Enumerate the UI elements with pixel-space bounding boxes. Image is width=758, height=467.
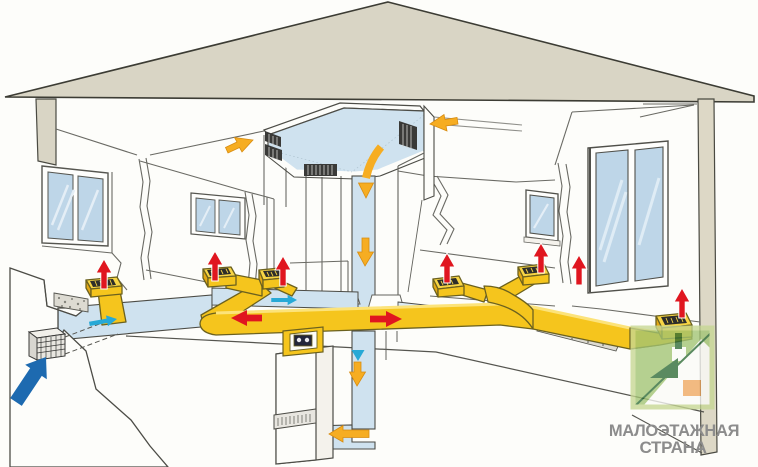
svg-text:СТРАНА: СТРАНА — [639, 438, 706, 457]
